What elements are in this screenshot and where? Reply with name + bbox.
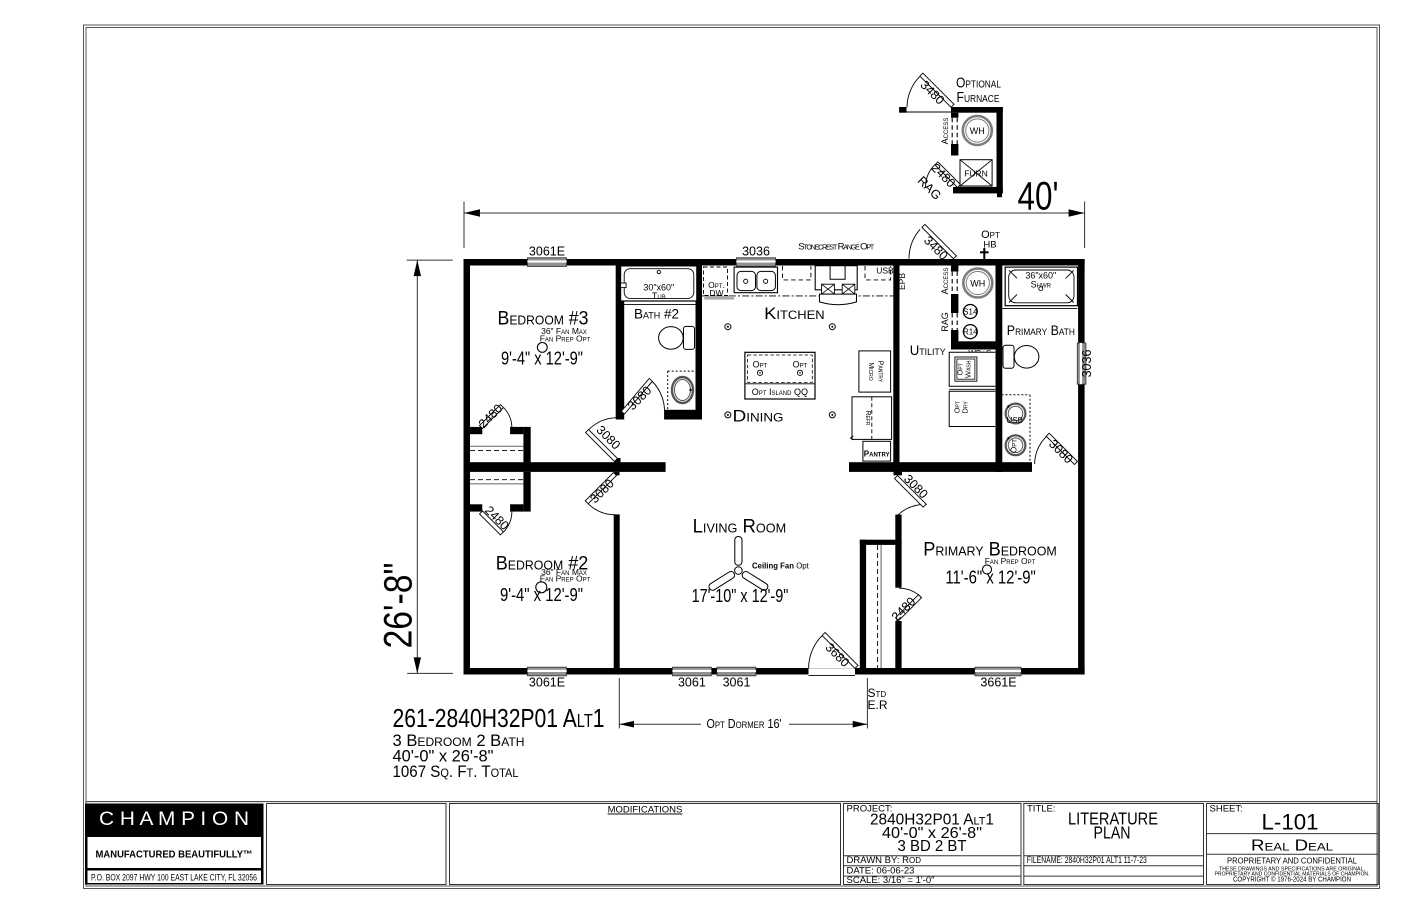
svg-text:COPYRIGHT © 1976-2024 BY CHAMP: COPYRIGHT © 1976-2024 BY CHAMPION (1233, 875, 1351, 883)
svg-text:R14: R14 (963, 327, 978, 336)
svg-text:9'-4" x 12'-9": 9'-4" x 12'-9" (500, 585, 583, 605)
svg-text:3061E: 3061E (529, 245, 565, 259)
svg-text:MANUFACTURED BEAUTIFULLY™: MANUFACTURED BEAUTIFULLY™ (96, 850, 253, 861)
svg-text:MODIFICATIONS: MODIFICATIONS (608, 805, 683, 816)
svg-text:PROPRIETARY AND CONFIDENTIAL: PROPRIETARY AND CONFIDENTIAL (1227, 856, 1357, 866)
svg-text:P.O. BOX 2097 HWY 100 EAST LAK: P.O. BOX 2097 HWY 100 EAST LAKE CITY, FL… (91, 873, 257, 884)
svg-text:USB: USB (1007, 416, 1023, 425)
svg-text:Dry: Dry (961, 401, 970, 414)
svg-text:WH: WH (970, 279, 985, 289)
svg-text:3061: 3061 (678, 676, 706, 690)
svg-text:USB: USB (876, 266, 894, 276)
svg-text:3036: 3036 (742, 245, 770, 259)
svg-text:Opt Dormer 16': Opt Dormer 16' (707, 717, 782, 731)
svg-text:Opt: Opt (1010, 439, 1019, 453)
svg-text:RAG: RAG (940, 312, 950, 332)
svg-text:Fan Prep Opt: Fan Prep Opt (540, 574, 591, 584)
svg-text:TITLE:: TITLE: (1027, 804, 1056, 815)
svg-text:SCALE: 3/16" = 1'-0": SCALE: 3/16" = 1'-0" (847, 875, 935, 886)
svg-text:Opt: Opt (753, 359, 768, 369)
svg-text:Access: Access (940, 118, 950, 145)
svg-text:3 BD 2 BT: 3 BD 2 BT (898, 838, 968, 855)
svg-text:L-101: L-101 (1262, 809, 1319, 834)
svg-text:Real Deal: Real Deal (1251, 838, 1333, 855)
svg-text:Ceiling Fan Opt: Ceiling Fan Opt (752, 562, 810, 571)
svg-text:11'-6" x 12'-9": 11'-6" x 12'-9" (945, 568, 1036, 588)
svg-text:Pantry: Pantry (864, 450, 890, 459)
svg-text:Primary Bath: Primary Bath (1007, 323, 1075, 338)
svg-text:Bath #2: Bath #2 (634, 307, 679, 322)
svg-text:3061E: 3061E (529, 676, 565, 690)
svg-text:Fan Prep Opt: Fan Prep Opt (985, 556, 1036, 566)
svg-text:Furnace: Furnace (957, 90, 1000, 106)
svg-text:1067 Sq. Ft. Total: 1067 Sq. Ft. Total (393, 763, 519, 781)
svg-text:Stonecrest Range Opt: Stonecrest Range Opt (798, 242, 875, 253)
svg-text:WH: WH (970, 126, 985, 136)
svg-text:40': 40' (1018, 175, 1059, 219)
svg-text:Pantry: Pantry (877, 361, 884, 383)
svg-text:Refr: Refr (864, 410, 871, 425)
svg-text:261-2840H32P01 Alt1: 261-2840H32P01 Alt1 (393, 703, 605, 733)
svg-text:Utility: Utility (910, 343, 946, 358)
svg-text:FILENAME: 2840H32P01 ALT1 11-7: FILENAME: 2840H32P01 ALT1 11-7-23 (1027, 855, 1147, 866)
svg-text:Micro: Micro (867, 362, 874, 380)
svg-text:26'-8": 26'-8" (377, 563, 421, 649)
svg-text:Wash: Wash (964, 360, 973, 378)
svg-text:SHEET:: SHEET: (1210, 804, 1243, 815)
svg-text:S14: S14 (963, 307, 978, 316)
svg-text:3661E: 3661E (980, 676, 1016, 690)
svg-text:Shwr: Shwr (1031, 280, 1052, 290)
svg-text:Tub: Tub (652, 291, 666, 301)
svg-text:17'-10" x 12'-9": 17'-10" x 12'-9" (692, 586, 789, 606)
svg-text:Dining: Dining (733, 407, 784, 426)
svg-text:DW: DW (709, 288, 723, 298)
svg-text:3036: 3036 (1080, 350, 1094, 378)
svg-text:Fan Prep Opt: Fan Prep Opt (540, 334, 591, 344)
svg-text:E.R: E.R (868, 698, 888, 712)
svg-text:Opt: Opt (793, 359, 808, 369)
svg-text:3061: 3061 (723, 676, 751, 690)
svg-text:Access: Access (940, 268, 950, 295)
svg-text:Kitchen: Kitchen (764, 304, 825, 323)
svg-text:C H A M P I O N: C H A M P I O N (99, 809, 249, 830)
svg-text:FURN: FURN (964, 169, 988, 179)
svg-text:EPB: EPB (897, 273, 907, 290)
svg-text:HB: HB (983, 239, 996, 250)
svg-text:9'-4" x 12'-9": 9'-4" x 12'-9" (501, 349, 583, 369)
svg-text:Opt Island QQ: Opt Island QQ (752, 387, 808, 397)
svg-text:PLAN: PLAN (1094, 823, 1131, 843)
svg-text:Living Room: Living Room (693, 517, 787, 538)
